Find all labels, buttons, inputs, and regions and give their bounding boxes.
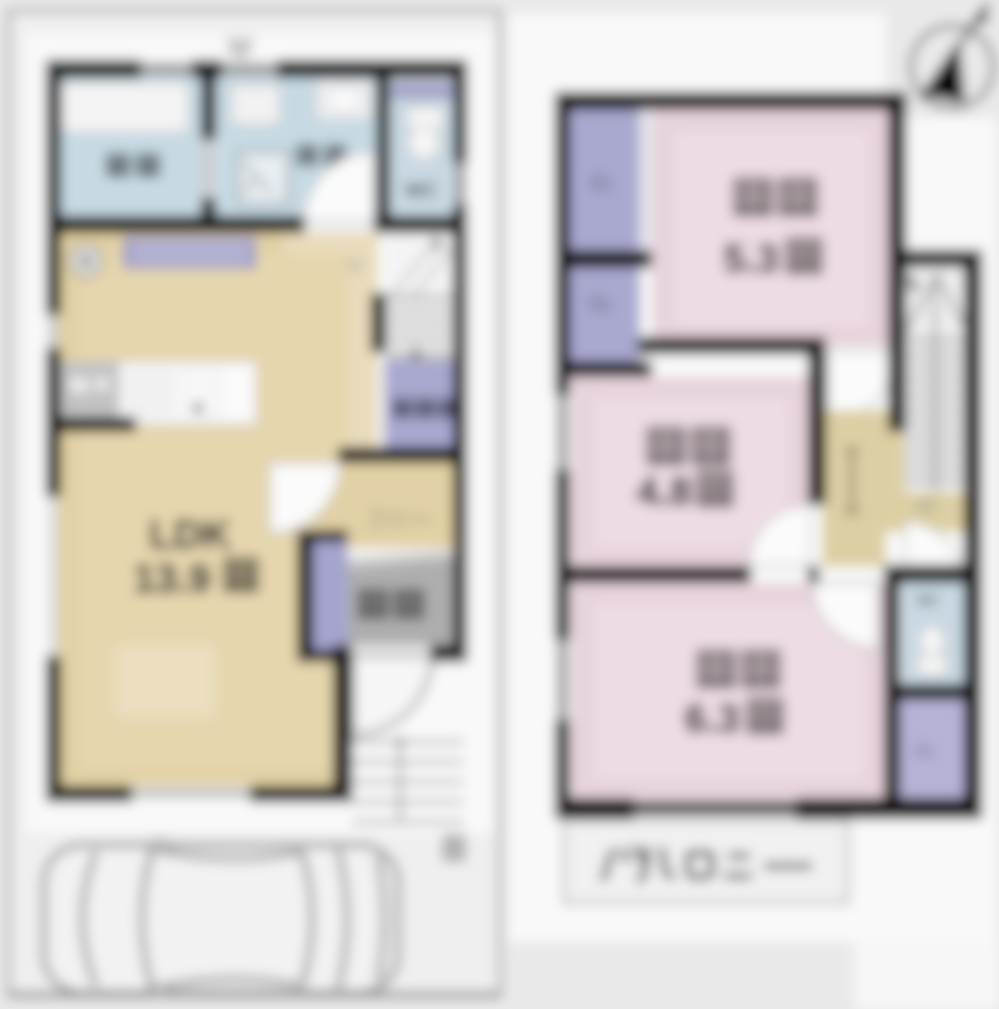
svg-text:4.8: 4.8 [636, 470, 692, 514]
svg-text:LDK: LDK [149, 513, 231, 557]
svg-text:WC: WC [916, 592, 939, 608]
svg-text:6.3: 6.3 [684, 697, 740, 741]
svg-text:13.9: 13.9 [133, 557, 211, 601]
svg-text:WC: WC [404, 180, 437, 202]
svg-text:CL: CL [590, 173, 614, 194]
svg-text:CL: CL [915, 743, 936, 760]
svg-text:5.3: 5.3 [723, 237, 779, 281]
svg-text:CL: CL [589, 294, 613, 315]
